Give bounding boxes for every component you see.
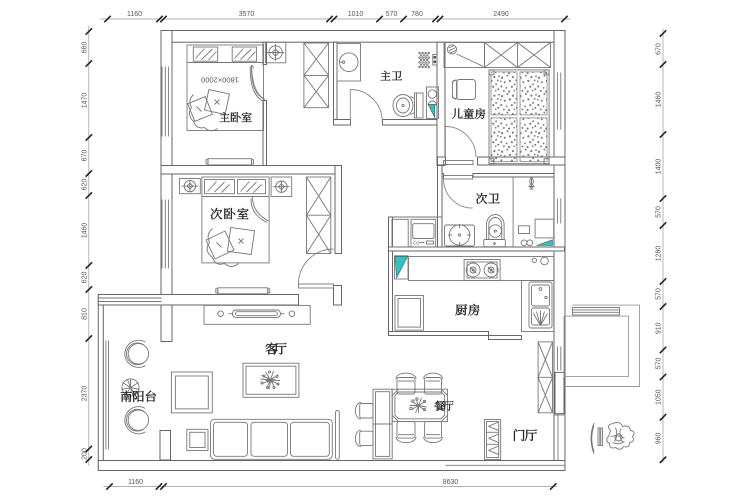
- svg-text:1160: 1160: [127, 11, 142, 18]
- svg-text:3570: 3570: [239, 11, 255, 18]
- svg-text:670: 670: [81, 150, 88, 162]
- svg-text:960: 960: [655, 433, 662, 445]
- svg-text:570: 570: [386, 11, 398, 18]
- svg-text:570: 570: [655, 358, 662, 370]
- svg-text:2370: 2370: [81, 386, 88, 402]
- svg-text:1050: 1050: [655, 389, 662, 405]
- svg-text:570: 570: [655, 288, 662, 300]
- svg-text:1280: 1280: [655, 246, 662, 262]
- svg-text:1400: 1400: [655, 159, 662, 175]
- svg-text:780: 780: [411, 11, 423, 18]
- svg-text:660: 660: [81, 42, 88, 54]
- svg-text:1160: 1160: [128, 479, 143, 486]
- svg-text:CO: CO: [413, 240, 420, 245]
- svg-text:1470: 1470: [81, 93, 88, 109]
- svg-text:570: 570: [655, 206, 662, 218]
- svg-text:620: 620: [81, 272, 88, 284]
- svg-text:1800×2000: 1800×2000: [201, 76, 239, 85]
- svg-text:620: 620: [81, 179, 88, 191]
- svg-text:8630: 8630: [443, 479, 459, 486]
- svg-text:810: 810: [81, 308, 88, 320]
- svg-text:1460: 1460: [81, 223, 88, 239]
- svg-text:200: 200: [81, 448, 88, 460]
- svg-text:1460: 1460: [655, 92, 662, 108]
- svg-text:2490: 2490: [493, 11, 509, 18]
- svg-text:670: 670: [655, 43, 662, 55]
- svg-text:910: 910: [655, 322, 662, 334]
- svg-text:1010: 1010: [348, 11, 364, 18]
